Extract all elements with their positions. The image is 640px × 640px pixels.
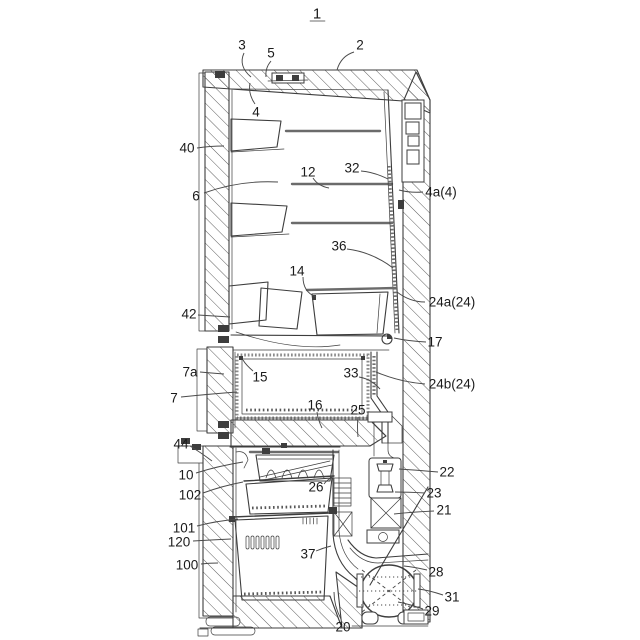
- ref-label-120: 120: [168, 535, 191, 550]
- ref-label-33: 33: [343, 366, 358, 381]
- ref-label-102: 102: [179, 488, 202, 503]
- leader-line-32: [361, 171, 388, 179]
- door-bin-2: [231, 203, 289, 237]
- gasket-block-4: [218, 432, 229, 439]
- ref-label-44: 44: [173, 437, 189, 452]
- bin-vent-slots: [246, 536, 279, 549]
- door-bin-3: [229, 282, 340, 347]
- middle-door-front-face: [197, 349, 207, 431]
- ref-label-21: 21: [436, 503, 451, 518]
- bin-tick-row: [303, 518, 317, 524]
- ref-label-6: 6: [192, 189, 200, 204]
- ref-label-24b(24): 24b(24): [429, 377, 476, 392]
- figure-number: 1: [313, 6, 321, 23]
- bin-side-fins: [334, 478, 351, 506]
- ref-label-42: 42: [181, 307, 196, 322]
- ref-label-29: 29: [424, 604, 439, 619]
- ref-label-7: 7: [170, 391, 178, 406]
- lower-door-panel: [203, 446, 233, 616]
- compressor-foot-left: [362, 612, 378, 624]
- drawer-insulated-case: [237, 355, 368, 418]
- ref-label-22: 22: [439, 465, 454, 480]
- gasket-block-1: [218, 325, 229, 332]
- ref-label-10: 10: [178, 468, 193, 483]
- ref-label-14: 14: [289, 264, 305, 279]
- ref-label-7a: 7a: [182, 365, 198, 380]
- ref-label-15: 15: [252, 370, 267, 385]
- ref-label-26: 26: [308, 480, 323, 495]
- bottom-wall: [233, 596, 342, 628]
- damper-valve-fill: [387, 334, 392, 339]
- ref-label-24a(24): 24a(24): [429, 295, 476, 310]
- cabinet-outer-walls: [178, 70, 430, 628]
- leader-line-36: [347, 249, 393, 268]
- ref-label-5: 5: [267, 46, 275, 61]
- duct-fastener-block: [398, 200, 404, 209]
- leader-line-25: [358, 417, 359, 437]
- ref-label-2: 2: [356, 38, 364, 53]
- top-wall: [203, 70, 430, 113]
- door-bin-1: [231, 119, 284, 152]
- ref-label-16: 16: [307, 398, 322, 413]
- upper-door-front-face: [199, 73, 205, 331]
- middle-door-panel: [207, 347, 233, 433]
- ref-label-3: 3: [238, 38, 246, 53]
- patent-figure-canvas: 1: [0, 0, 640, 640]
- top-hinge-block: [215, 71, 225, 78]
- evaporator-box: [371, 498, 401, 528]
- ref-label-36: 36: [331, 239, 346, 254]
- ref-label-31: 31: [444, 590, 459, 605]
- figure-number-group: 1: [310, 6, 325, 23]
- ice-tray: [250, 443, 338, 481]
- interior-bin-14: [307, 288, 396, 335]
- gasket-block-2: [218, 336, 229, 343]
- fan-shroud-lower: [334, 512, 352, 536]
- gasket-block-3: [218, 421, 229, 428]
- upper-ice-bin: [244, 476, 351, 514]
- ref-label-17: 17: [427, 335, 442, 350]
- ref-label-37: 37: [300, 547, 315, 562]
- ref-label-100: 100: [176, 558, 199, 573]
- ref-label-4: 4: [252, 105, 260, 120]
- ref-label-40: 40: [179, 141, 194, 156]
- top-component: [268, 73, 308, 83]
- leader-line-2: [337, 52, 354, 70]
- mid-divider-insulation: [231, 420, 386, 446]
- ref-label-25: 25: [350, 403, 365, 418]
- ref-label-101: 101: [173, 521, 196, 536]
- ref-label-4a(4): 4a(4): [425, 185, 457, 200]
- ref-label-12: 12: [300, 165, 315, 180]
- top-component-block-1: [276, 75, 283, 81]
- gasket-block-6: [192, 444, 201, 450]
- ref-label-23: 23: [426, 486, 441, 501]
- ref-label-20: 20: [335, 620, 350, 635]
- ref-label-32: 32: [344, 161, 359, 176]
- compressor-rail-right: [414, 574, 420, 607]
- motor-bracket: [367, 530, 399, 543]
- door-hook-bracket: [236, 452, 248, 468]
- upper-door-panel: [205, 72, 229, 331]
- divider-top-line: [231, 335, 391, 336]
- leader-line-37: [316, 546, 331, 551]
- ref-label-28: 28: [428, 565, 443, 580]
